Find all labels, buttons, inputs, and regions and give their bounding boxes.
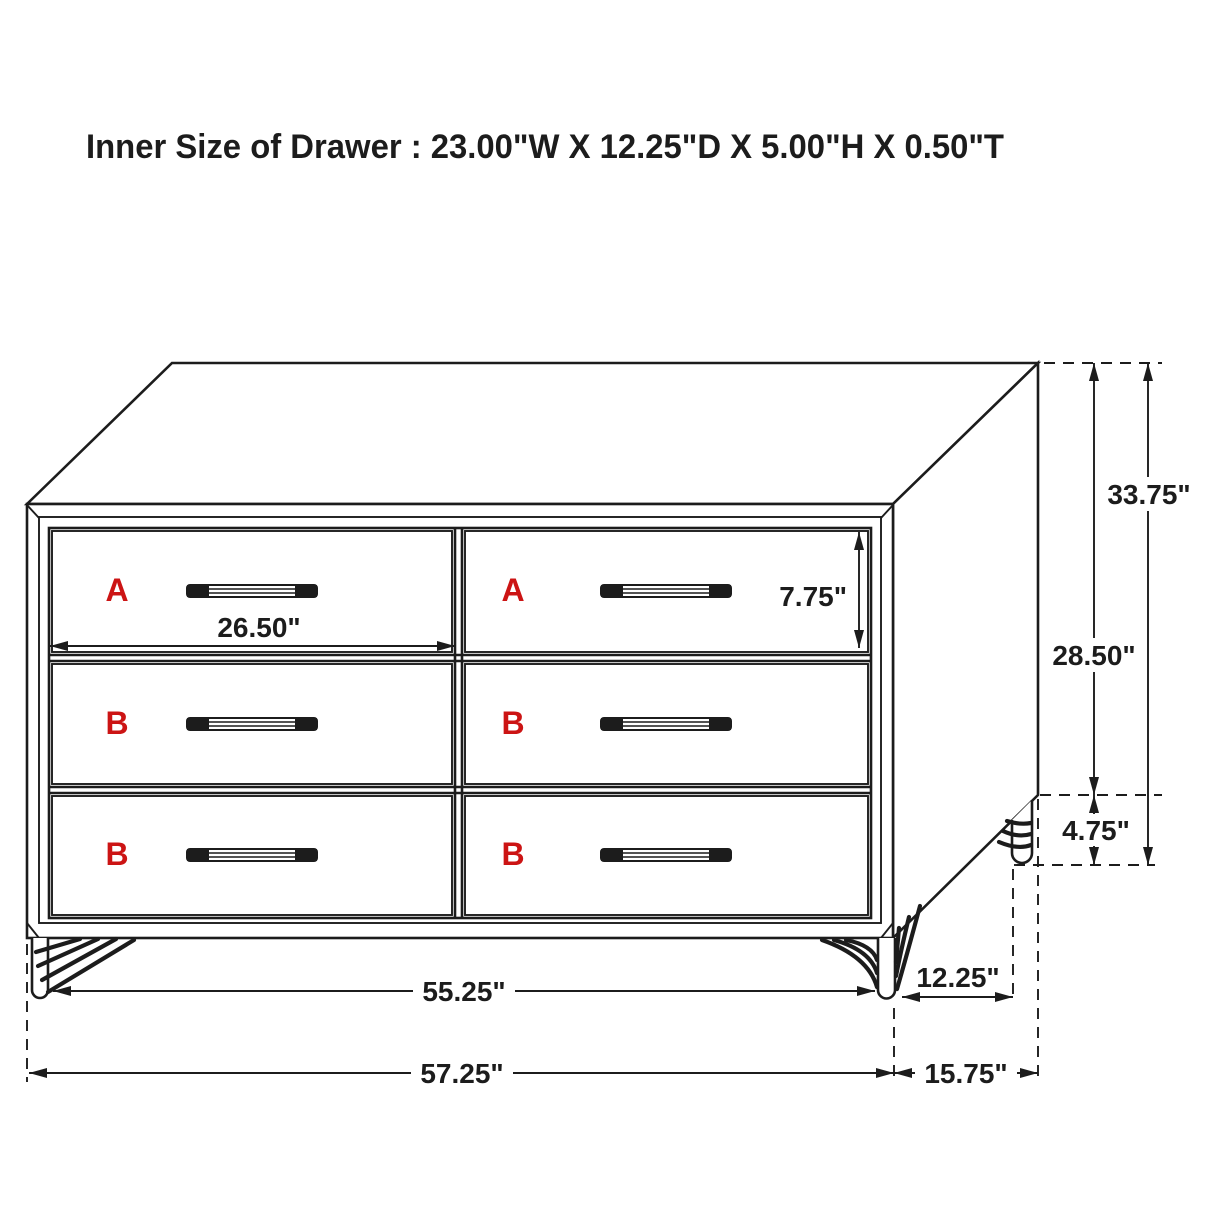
dim-overall-height-label: 33.75": [1107, 479, 1190, 510]
front-right-leg: [878, 938, 895, 999]
dim-overall-depth-label: 15.75": [924, 1058, 1007, 1089]
back-right-bracket-curve: [1007, 821, 1031, 824]
drawer-handle-mid-left: [187, 718, 317, 730]
dim-top-drawer-height-label: 7.75": [779, 581, 847, 612]
diagram-title: Inner Size of Drawer : 23.00"W X 12.25"D…: [86, 128, 1004, 166]
dim-leg-height: 4.75": [1052, 795, 1138, 865]
drawer-handle-top-left: [187, 585, 317, 597]
drawer-label-mid-right: B: [501, 705, 524, 741]
dim-leg-height-label: 4.75": [1062, 815, 1130, 846]
dresser-dimension-diagram: Inner Size of Drawer : 23.00"W X 12.25"D…: [0, 0, 1214, 1214]
drawer-handle-bottom-right: [601, 849, 731, 861]
drawer-label-top-right: A: [501, 572, 524, 608]
drawer-label-mid-left: B: [105, 705, 128, 741]
dim-drawer-opening-width-label: 26.50": [217, 612, 300, 643]
dim-overall-height: 33.75": [1100, 363, 1198, 865]
drawer-handle-mid-right: [601, 718, 731, 730]
drawer-label-bottom-right: B: [501, 836, 524, 872]
dim-case-height: 28.50": [1045, 363, 1143, 795]
drawer-label-top-left: A: [105, 572, 128, 608]
dim-case-height-label: 28.50": [1052, 640, 1135, 671]
drawer-handle-top-right: [601, 585, 731, 597]
front-left-bracket-line: [48, 940, 134, 992]
dim-overall-width-label: 57.25": [420, 1058, 503, 1089]
dim-leg-depth-span: 12.25": [902, 962, 1013, 1002]
dim-overall-width: 57.25": [29, 1057, 894, 1089]
diagram-canvas: Inner Size of Drawer : 23.00"W X 12.25"D…: [0, 0, 1214, 1214]
dim-base-width-label: 55.25": [422, 976, 505, 1007]
drawer-handle-bottom-left: [187, 849, 317, 861]
dim-leg-depth-span-label: 12.25": [916, 962, 999, 993]
dim-overall-depth: 15.75": [894, 1057, 1038, 1089]
dim-base-width: 55.25": [53, 975, 875, 1007]
drawer-label-bottom-left: B: [105, 836, 128, 872]
top-face: [27, 363, 1038, 504]
